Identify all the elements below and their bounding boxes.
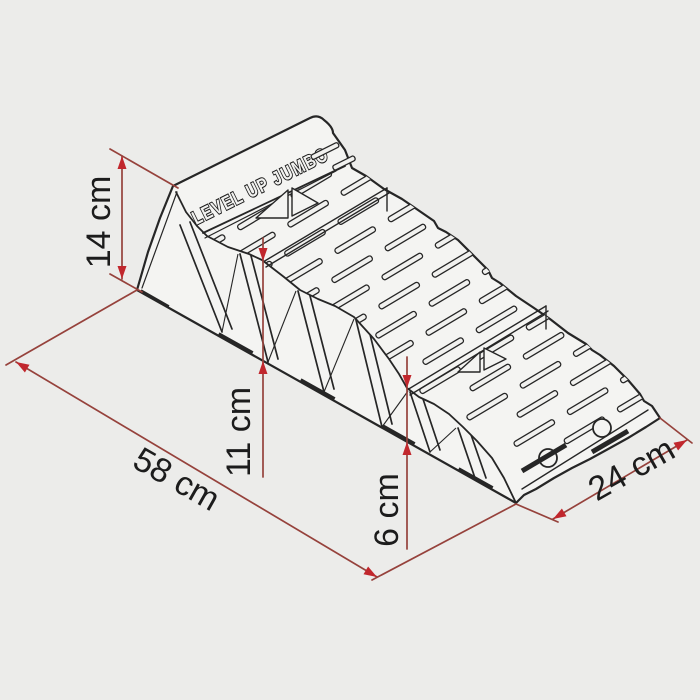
tread-slot xyxy=(576,300,618,328)
tread-slot xyxy=(441,162,483,190)
dimension-arrowhead xyxy=(118,266,127,279)
dimension-arrowhead xyxy=(364,567,378,578)
tread-slot xyxy=(582,242,624,270)
dimension-arrowhead xyxy=(553,509,567,520)
tread-slot xyxy=(532,244,574,272)
dimension-label-length: 58 cm xyxy=(127,440,226,519)
tread-slot xyxy=(676,295,700,323)
tread-slot xyxy=(535,215,577,243)
tread-slot xyxy=(529,273,571,301)
tread-slot xyxy=(670,353,700,381)
tread-slot xyxy=(579,271,621,299)
tread-slot xyxy=(620,355,662,383)
dimension-line xyxy=(516,504,558,522)
tread-slot xyxy=(673,324,700,352)
tread-slot xyxy=(626,297,668,325)
ramp-outline xyxy=(137,116,660,503)
tread-slot xyxy=(485,218,527,246)
tread-slot xyxy=(623,326,665,354)
tread-slot xyxy=(629,268,671,296)
dimension-label-total-height: 14 cm xyxy=(80,176,118,269)
diagram-canvas: LEVEL UP JUMBO 14 cm 58 cm 11 cm 6 cm 24… xyxy=(0,0,700,700)
tread-slot xyxy=(488,189,530,217)
tread-slot xyxy=(390,165,432,193)
dimension-line xyxy=(6,290,137,365)
tread-slot xyxy=(393,136,435,164)
tread-slot xyxy=(481,247,523,275)
tread-slot xyxy=(437,192,479,220)
dimension-label-middle-step-height: 11 cm xyxy=(220,387,258,477)
dimension-arrowhead xyxy=(16,362,30,373)
leveling-ramp-dimension-diagram: LEVEL UP JUMBO 14 cm 58 cm 11 cm 6 cm 24… xyxy=(0,0,700,700)
dimension-arrowhead xyxy=(674,440,688,451)
dimension-label-low-step-height: 6 cm xyxy=(368,473,406,547)
